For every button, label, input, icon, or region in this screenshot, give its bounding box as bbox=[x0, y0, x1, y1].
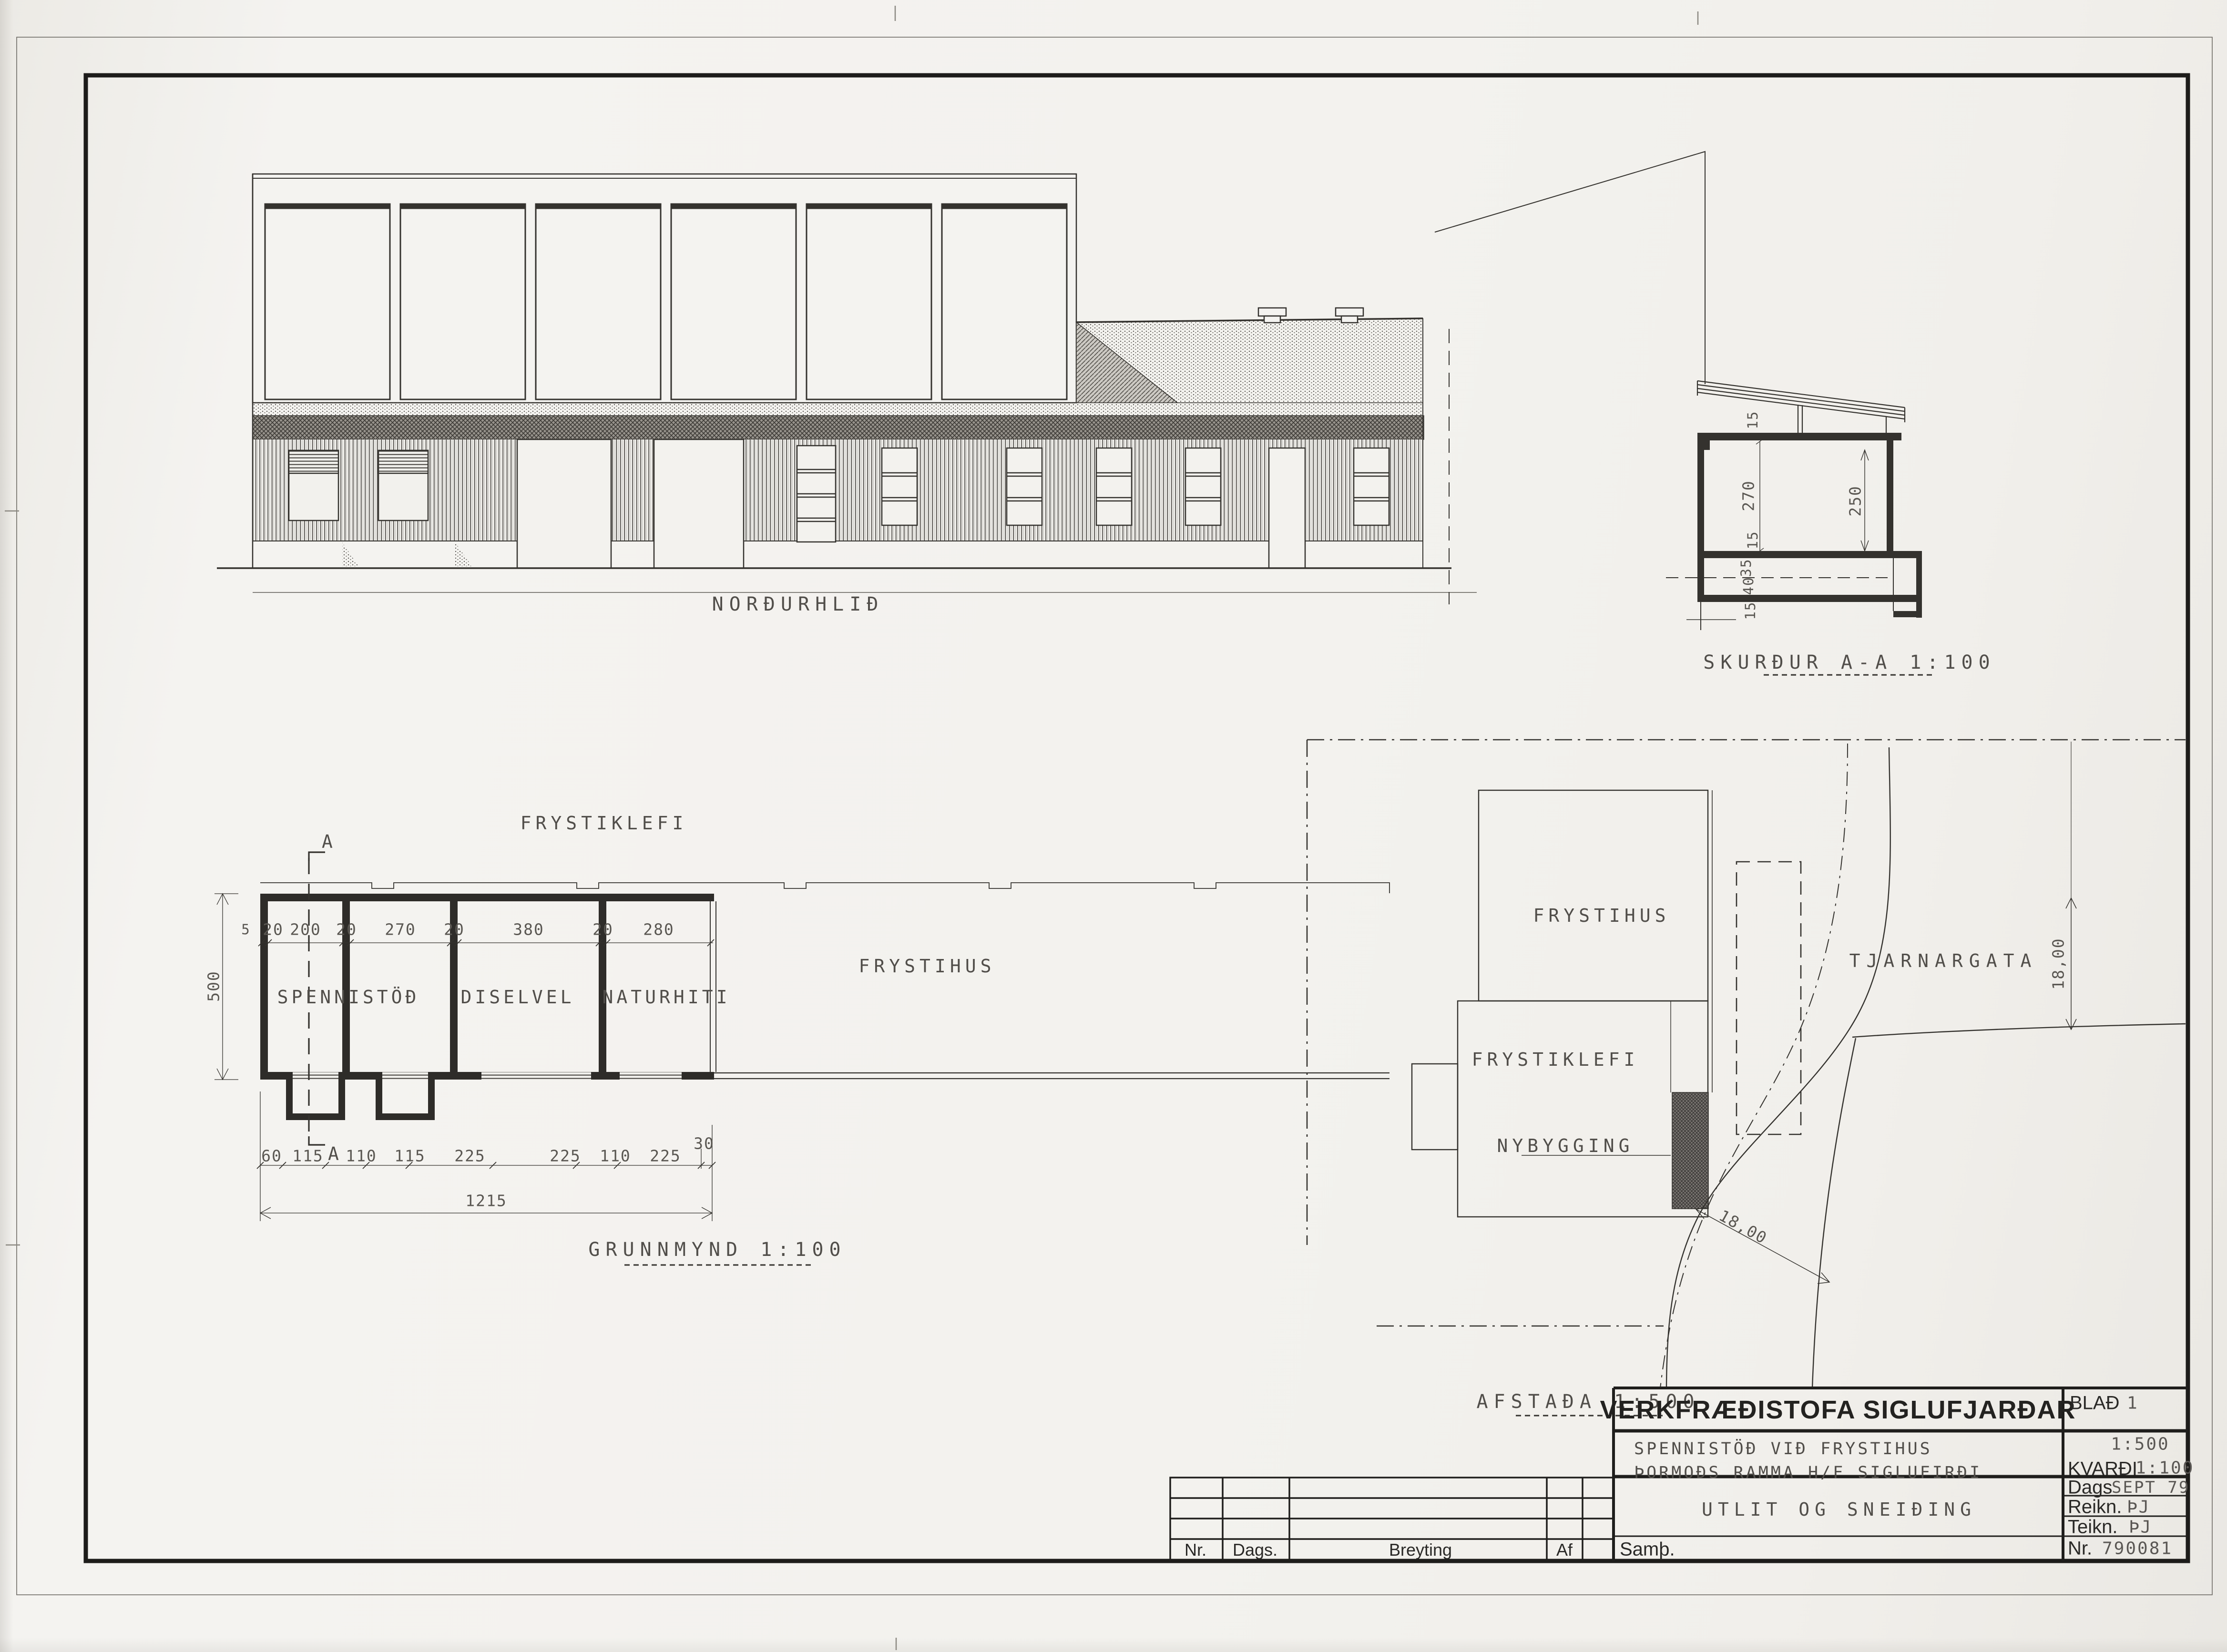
plan-dim: 225 bbox=[454, 1147, 486, 1165]
number-value: 790081 bbox=[2102, 1539, 2173, 1559]
revision-col-af: Af bbox=[1556, 1540, 1573, 1560]
plan-dim: 110 bbox=[346, 1147, 377, 1165]
scale-value-1: 1:500 bbox=[2111, 1435, 2169, 1454]
section-dim: 15 bbox=[1742, 602, 1758, 620]
elevation-fascia-band bbox=[253, 403, 1423, 416]
company-name: VERKFRÆÐISTOFA SIGLUFJARÐAR bbox=[1600, 1395, 2076, 1425]
approved-label: Samþ. bbox=[1620, 1539, 1675, 1560]
drawing-sheet: NORÐURHLIÐ SKURÐUR A-A 1:100 15 270 15 3… bbox=[0, 0, 2227, 1652]
site-nybygging-label: NYBYGGING bbox=[1497, 1135, 1634, 1156]
section-dim: 270 bbox=[1739, 480, 1758, 511]
plan-existing-outline bbox=[260, 883, 1389, 893]
elevation-window-4pane bbox=[797, 446, 836, 542]
plan-title: GRUNNMYND 1:100 bbox=[588, 1239, 846, 1261]
plan-area-above-label: FRYSTIKLEFI bbox=[521, 813, 688, 834]
section-dim: 35 bbox=[1738, 559, 1754, 577]
date-label: Dags bbox=[2068, 1477, 2112, 1499]
plan-dim: 115 bbox=[292, 1147, 324, 1165]
site-street-label: TJARNARGATA bbox=[1849, 950, 2038, 971]
sheet-number-label: BLAÐ bbox=[2070, 1393, 2120, 1414]
project-line1: SPENNISTÖÐ VIÐ FRYSTIHUS bbox=[1634, 1439, 1932, 1458]
section-marker: A bbox=[322, 831, 337, 852]
plan-dim: 20 bbox=[336, 920, 357, 939]
elevation-right-door bbox=[1269, 448, 1305, 568]
drawn-by-value: ÞJ bbox=[2129, 1518, 2152, 1537]
project-line2: ÞORMOÐS RAMMA H/F SIGLUFIRÐI bbox=[1634, 1463, 1982, 1482]
plan-dim-left: 500 bbox=[204, 970, 223, 1002]
elevation-title: NORÐURHLIÐ bbox=[712, 593, 884, 615]
drawing-title: UTLIT OG SNEIÐING bbox=[1702, 1499, 1976, 1520]
site-frystiklefi-label: FRYSTIKLEFI bbox=[1472, 1049, 1639, 1070]
calculated-by-label: Reikn. bbox=[2068, 1497, 2122, 1518]
section-dim: 15 bbox=[1745, 411, 1761, 429]
site-dashed-building bbox=[1737, 862, 1801, 1134]
plan-dim: 110 bbox=[600, 1147, 631, 1165]
plan-dim: 225 bbox=[650, 1147, 681, 1165]
section-title: SKURÐUR A-A 1:100 bbox=[1703, 652, 1995, 673]
plan-room-label: NATURHITI bbox=[603, 987, 731, 1008]
drawn-by-label: Teikn. bbox=[2068, 1517, 2118, 1538]
plan-dim-lines bbox=[215, 894, 715, 1221]
site-dim-lines bbox=[1696, 742, 2076, 1284]
scale-value-2: 1:100 bbox=[2135, 1458, 2194, 1478]
site-dim: 18,00 bbox=[2049, 938, 2068, 989]
section-structure bbox=[1697, 433, 1922, 618]
plan-room-label: DISELVEL bbox=[460, 987, 574, 1008]
plan-dim: 20 bbox=[263, 920, 284, 939]
site-frystiklefi bbox=[1458, 1001, 1708, 1217]
revision-col-breyting: Breyting bbox=[1389, 1540, 1452, 1560]
plan-dim-total: 1215 bbox=[465, 1192, 507, 1210]
plan-dim: 60 bbox=[261, 1147, 282, 1165]
plan-dim: 225 bbox=[550, 1147, 581, 1165]
plan-dim: 200 bbox=[290, 920, 321, 939]
sheet-number-value: 1 bbox=[2127, 1394, 2139, 1413]
plan-dim: 380 bbox=[513, 920, 544, 939]
plan-dim: 280 bbox=[643, 920, 674, 939]
revision-col-nr: Nr. bbox=[1185, 1540, 1206, 1560]
site-plan-drawing bbox=[1307, 675, 2186, 1416]
section-marker: A bbox=[328, 1143, 343, 1164]
calculated-by-value: ÞJ bbox=[2127, 1498, 2150, 1517]
site-nybygging-hatch bbox=[1672, 1092, 1708, 1209]
plan-dim: 20 bbox=[593, 920, 613, 939]
floor-plan-drawing bbox=[215, 852, 1389, 1265]
elevation-dark-band bbox=[253, 416, 1424, 439]
plan-dim: 270 bbox=[385, 920, 416, 939]
context-building-outline bbox=[1435, 152, 1705, 384]
plan-hall-label: FRYSTIHUS bbox=[859, 956, 996, 977]
plan-dim: 30 bbox=[694, 1134, 715, 1153]
plan-dim: 115 bbox=[394, 1147, 426, 1165]
site-frystihus bbox=[1479, 790, 1708, 1001]
elevation-drawing bbox=[217, 174, 1477, 604]
plan-dim: 5 bbox=[241, 921, 250, 938]
section-dim-right: 250 bbox=[1846, 485, 1865, 517]
date-value: SEPT 79 bbox=[2112, 1478, 2190, 1497]
section-drawing bbox=[1435, 152, 1922, 630]
section-dim: 40 bbox=[1740, 577, 1757, 595]
plan-room-label: SPENNISTÖÐ bbox=[277, 987, 420, 1008]
section-roof bbox=[1697, 381, 1905, 433]
site-roads bbox=[1660, 744, 2186, 1388]
revision-col-dags: Dags. bbox=[1233, 1540, 1277, 1560]
plan-dim: 20 bbox=[444, 920, 465, 939]
site-frystihus-label: FRYSTIHUS bbox=[1533, 905, 1670, 926]
number-label: Nr. bbox=[2068, 1538, 2092, 1560]
section-dim: 15 bbox=[1745, 531, 1761, 550]
